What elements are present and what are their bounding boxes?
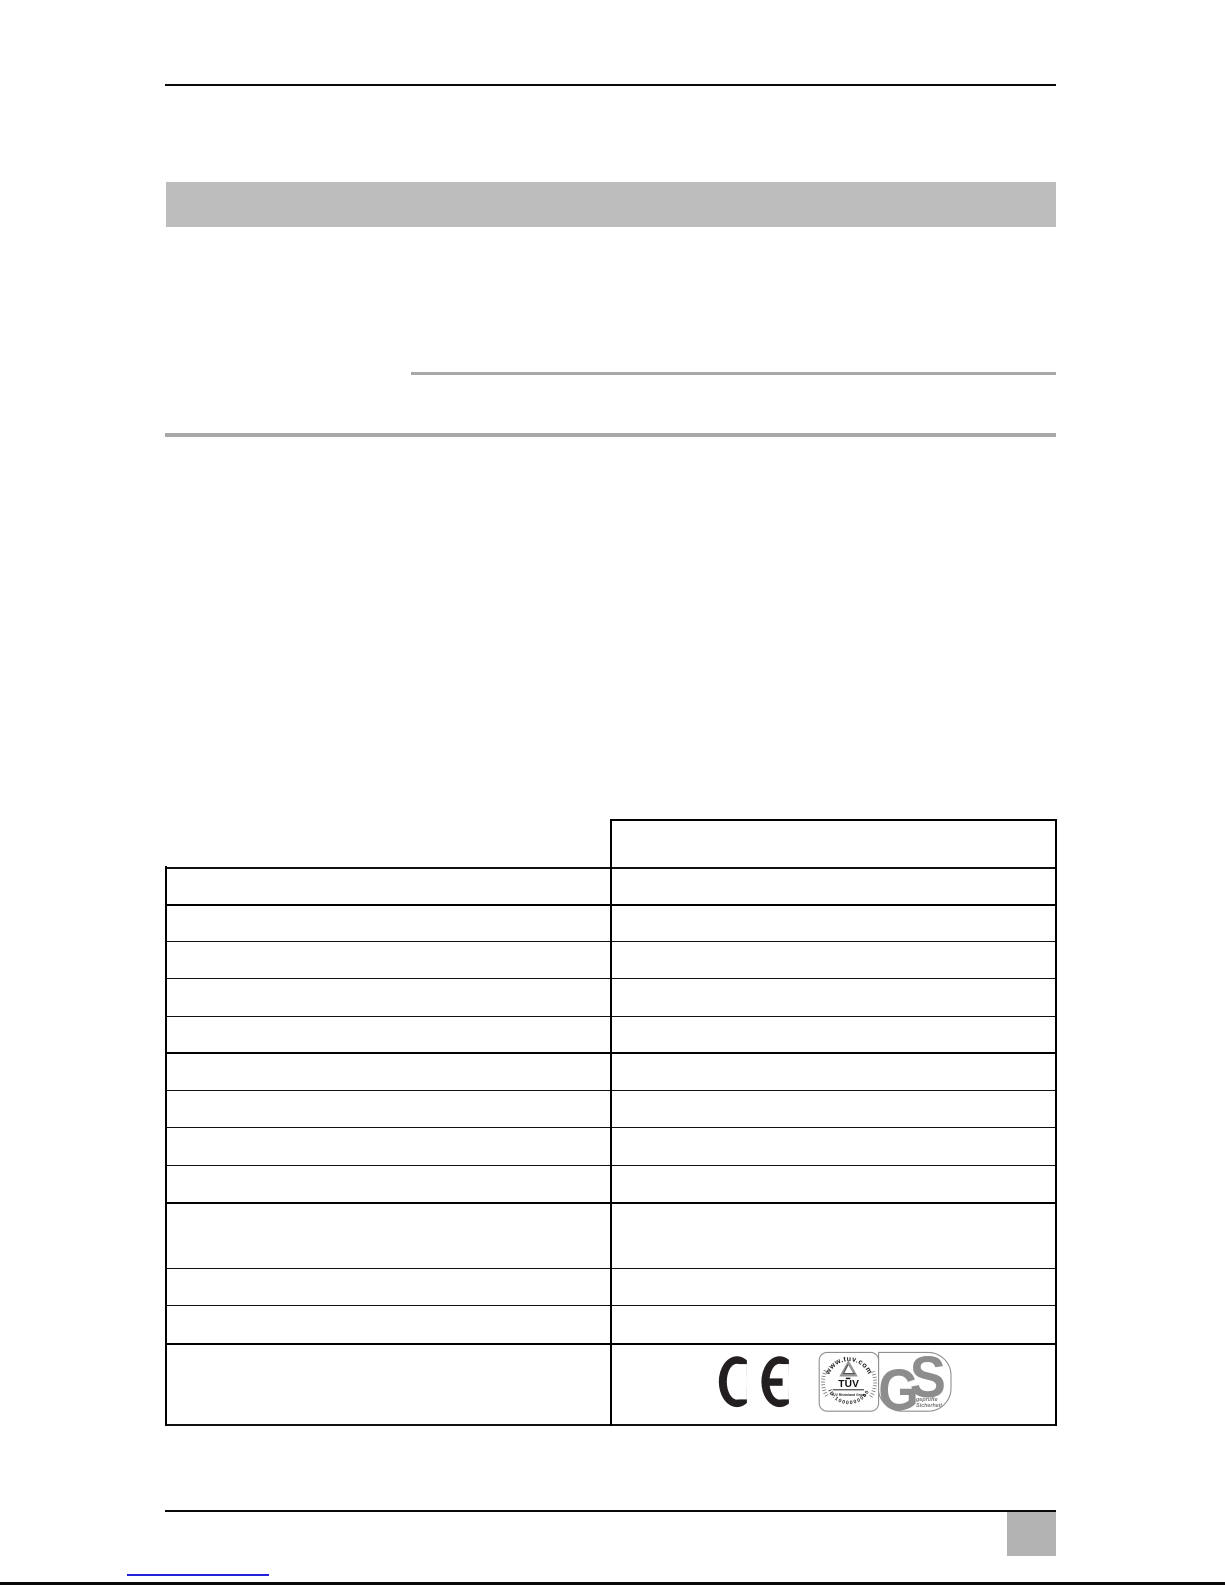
svg-text:TUV Rheinland Group: TUV Rheinland Group bbox=[831, 1393, 866, 1397]
svg-text:TUV: TUV bbox=[838, 1379, 859, 1390]
svg-text:geprüfte: geprüfte bbox=[915, 1397, 938, 1403]
svg-text:Sicherheit: Sicherheit bbox=[916, 1403, 942, 1409]
